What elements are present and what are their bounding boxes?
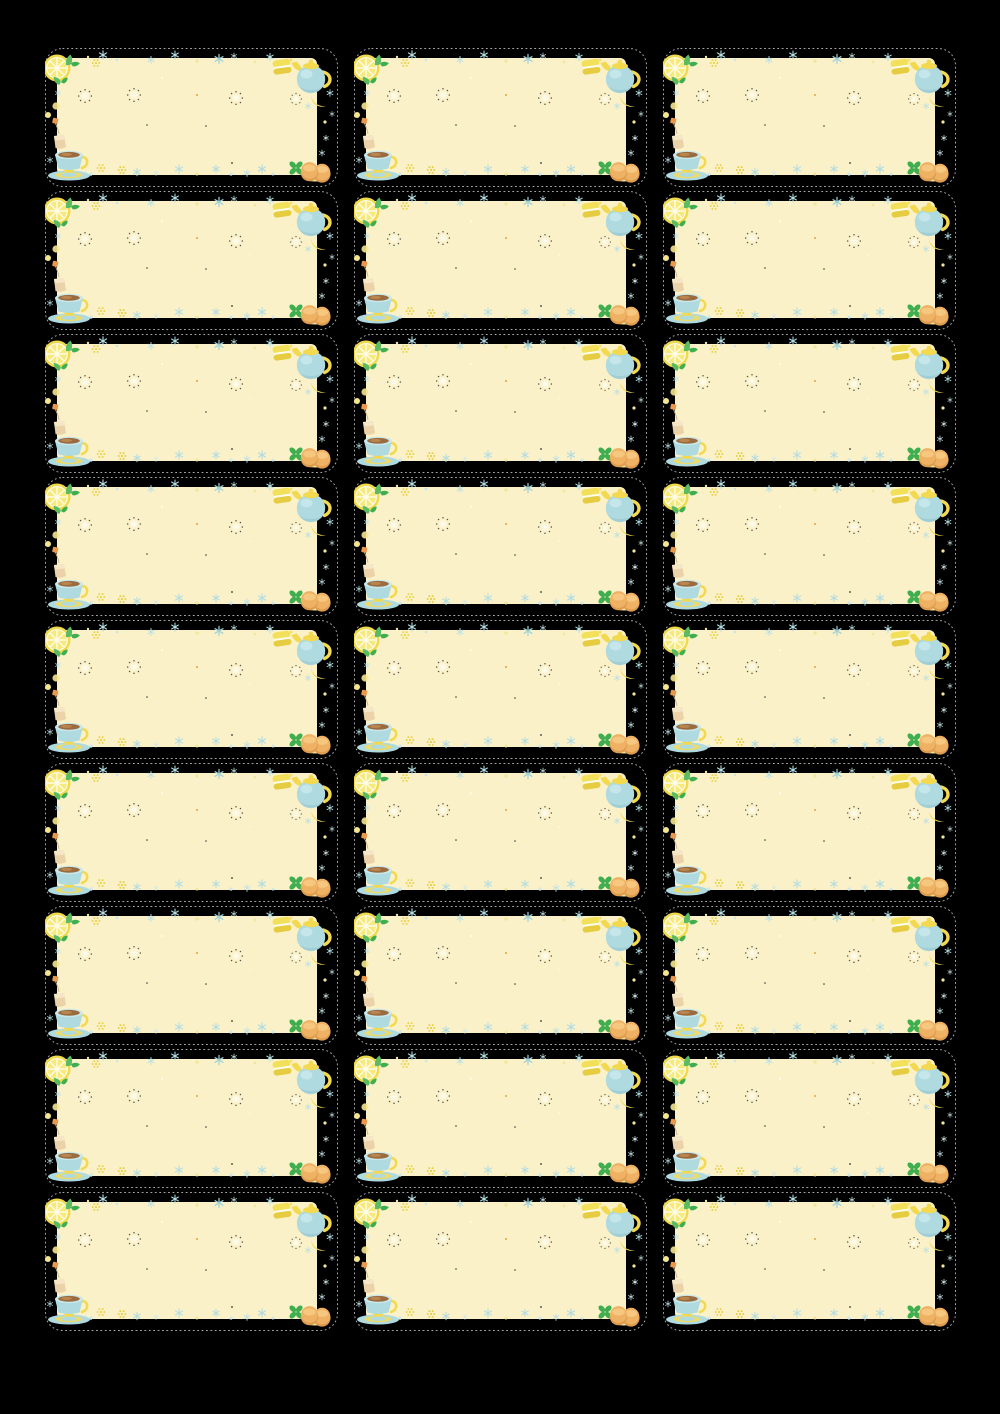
- label-sheet: [0, 0, 1000, 1331]
- label-sticker: [663, 1192, 956, 1331]
- label-sticker: [354, 1049, 647, 1188]
- label-decoration-art: [354, 1192, 647, 1331]
- label-sticker: [45, 1049, 338, 1188]
- label-decoration-art: [354, 191, 647, 330]
- label-decoration-art: [663, 334, 956, 473]
- label-sticker: [354, 477, 647, 616]
- label-sticker: [663, 1049, 956, 1188]
- label-decoration-art: [45, 477, 338, 616]
- label-sticker: [663, 191, 956, 330]
- label-decoration-art: [663, 906, 956, 1045]
- label-decoration-art: [45, 620, 338, 759]
- label-sticker: [45, 334, 338, 473]
- label-sticker: [45, 763, 338, 902]
- label-decoration-art: [354, 477, 647, 616]
- label-decoration-art: [354, 334, 647, 473]
- label-decoration-art: [354, 620, 647, 759]
- label-sticker: [45, 477, 338, 616]
- label-decoration-art: [354, 1049, 647, 1188]
- label-decoration-art: [354, 763, 647, 902]
- label-sticker: [663, 334, 956, 473]
- label-sticker: [663, 620, 956, 759]
- label-sticker: [354, 191, 647, 330]
- label-decoration-art: [663, 1192, 956, 1331]
- label-sticker: [663, 763, 956, 902]
- label-sticker: [45, 191, 338, 330]
- label-sticker: [354, 763, 647, 902]
- label-sticker: [45, 906, 338, 1045]
- label-decoration-art: [663, 191, 956, 330]
- label-decoration-art: [45, 763, 338, 902]
- label-sticker: [45, 620, 338, 759]
- label-sticker: [354, 334, 647, 473]
- label-sticker: [354, 906, 647, 1045]
- label-decoration-art: [663, 48, 956, 187]
- label-decoration-art: [45, 1192, 338, 1331]
- label-decoration-art: [45, 191, 338, 330]
- label-decoration-art: [45, 906, 338, 1045]
- label-sticker: [45, 1192, 338, 1331]
- label-sticker: [45, 48, 338, 187]
- label-decoration-art: [663, 477, 956, 616]
- label-decoration-art: [45, 48, 338, 187]
- label-sticker: [663, 477, 956, 616]
- label-decoration-art: [45, 1049, 338, 1188]
- label-decoration-art: [663, 1049, 956, 1188]
- label-decoration-art: [663, 763, 956, 902]
- label-decoration-art: [45, 334, 338, 473]
- label-decoration-art: [354, 48, 647, 187]
- label-sticker: [354, 48, 647, 187]
- label-decoration-art: [354, 906, 647, 1045]
- label-sticker: [354, 1192, 647, 1331]
- label-sticker: [354, 620, 647, 759]
- label-decoration-art: [663, 620, 956, 759]
- label-sticker: [663, 906, 956, 1045]
- label-sticker: [663, 48, 956, 187]
